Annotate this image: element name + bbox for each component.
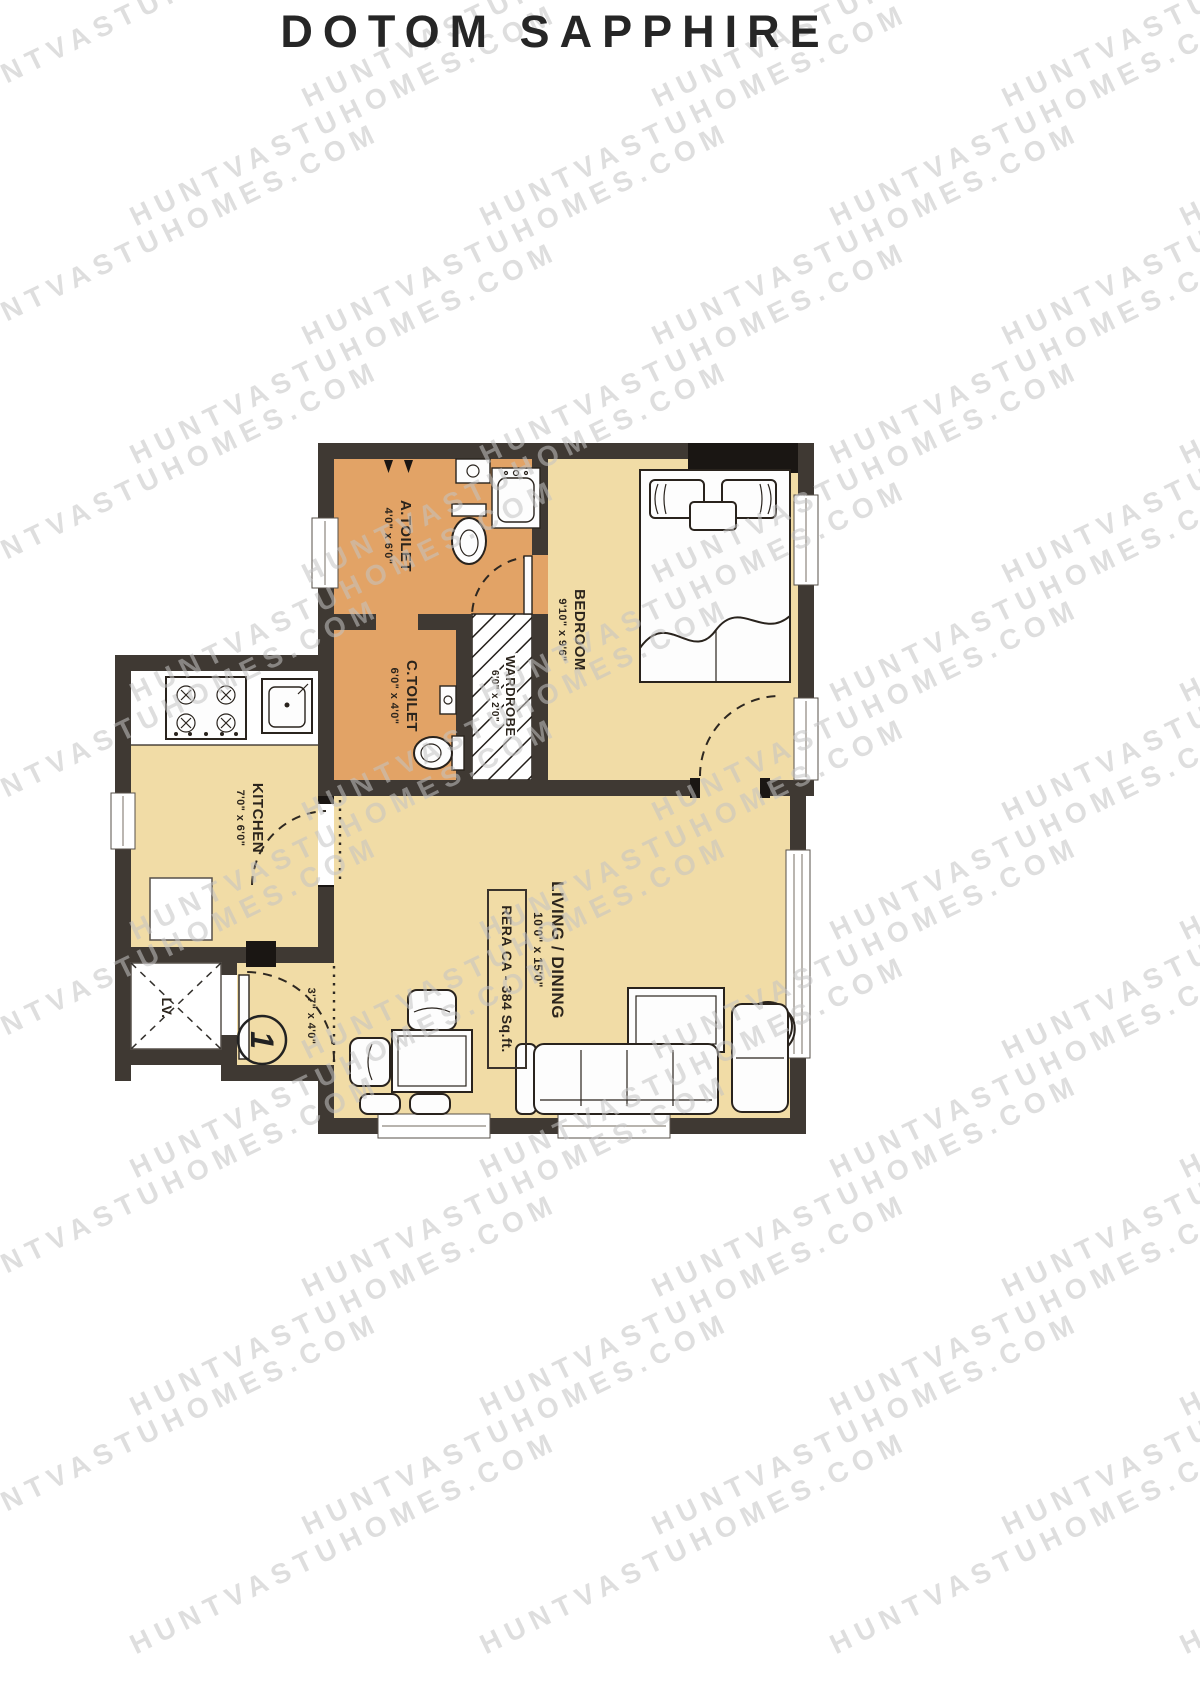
side-sofa-icon — [732, 1004, 788, 1112]
dining-table-icon — [392, 1030, 472, 1092]
washbasin-icon-ctoilet — [440, 686, 456, 714]
utility-shaft — [150, 878, 212, 940]
window-kitchen-left — [111, 793, 135, 849]
wall-kitchen-top — [115, 655, 334, 671]
svg-text:C.TOILET: C.TOILET — [403, 660, 420, 732]
floor-plan-svg: A.TOILET 4'0" x 6'0" C.TOILET 6'0" x 4'0… — [0, 0, 1200, 1697]
sofa-icon — [516, 1044, 718, 1114]
foyer-door-gap — [221, 975, 237, 1035]
wc-icon-a-toilet — [452, 504, 486, 564]
svg-text:1: 1 — [244, 1031, 280, 1049]
wall-wardrobe-bedroom — [532, 614, 548, 780]
wc-icon-c-toilet — [414, 736, 464, 770]
kitchen-door-gap — [318, 804, 334, 885]
svg-text:RERA CA - 384 Sq.ft.: RERA CA - 384 Sq.ft. — [499, 905, 515, 1052]
bedroom-door-fill — [700, 780, 760, 796]
svg-text:3'7" x 4'0": 3'7" x 4'0" — [305, 988, 317, 1045]
kitchen-sink-icon — [262, 679, 312, 733]
page: DOTOM SAPPHIRE HUNTVASTUHOMES.COMHUNTVAS… — [0, 0, 1200, 1697]
svg-text:7'0" x 6'0": 7'0" x 6'0" — [234, 790, 246, 847]
svg-text:BEDROOM: BEDROOM — [571, 589, 588, 671]
label-a-toilet: A.TOILET 4'0" x 6'0" — [382, 500, 414, 572]
coffee-table-icon — [628, 988, 724, 1052]
wall-lift-foyer-b — [221, 1035, 237, 1049]
nub-bedroom-door-right — [760, 778, 770, 798]
wall-mid-horizontal — [318, 780, 690, 796]
wall-lift-foyer-a — [221, 963, 237, 975]
bed-icon — [640, 470, 790, 682]
wall-kitchen-right-upper — [318, 655, 334, 804]
svg-text:WARDROBE: WARDROBE — [503, 655, 518, 736]
duct-block — [688, 443, 814, 473]
svg-text:KITCHEN: KITCHEN — [249, 783, 266, 853]
label-c-toilet: C.TOILET 6'0" x 4'0" — [388, 660, 420, 732]
wall-lift-bottom — [115, 1049, 237, 1065]
corner-sink-icon — [456, 459, 490, 483]
wall-kitchen-left — [115, 655, 131, 1081]
svg-text:6'0" x 4'0": 6'0" x 4'0" — [388, 668, 400, 725]
label-kitchen: KITCHEN 7'0" x 6'0" — [234, 783, 266, 853]
label-rera: RERA CA - 384 Sq.ft. — [499, 905, 515, 1052]
svg-text:6'0" x 2'0": 6'0" x 2'0" — [489, 670, 500, 722]
ctoilet-door-gap — [376, 614, 418, 630]
wall-foyer-bottom — [221, 1065, 334, 1081]
lift-shaft — [131, 963, 221, 1049]
window-bottom-1 — [378, 1114, 490, 1138]
wall-foyer-top — [131, 947, 334, 963]
svg-text:10'0" x 15'0": 10'0" x 15'0" — [531, 912, 545, 988]
window-bedroom-right-2 — [794, 698, 818, 780]
label-lift: LV. — [159, 998, 175, 1019]
stove-icon — [166, 677, 246, 739]
washbasin-icon-bath — [492, 468, 540, 528]
wardrobe-floor — [472, 614, 532, 780]
window-toilet-left — [312, 518, 338, 588]
window-bottom-2 — [558, 1114, 670, 1138]
label-bedroom: BEDROOM 9'10" x 9'6" — [556, 589, 588, 671]
wall-mid-horizontal-right — [770, 780, 814, 796]
page-title: DOTOM SAPPHIRE — [0, 6, 1110, 58]
window-bedroom-right-1 — [794, 495, 818, 585]
unit-number: 1 — [244, 1031, 280, 1049]
label-foyer-dims-real: 3'7" x 4'0" — [305, 988, 317, 1045]
wall-kitchen-right-lower — [318, 885, 334, 947]
bath-door-fill — [532, 555, 548, 614]
column-foyer — [246, 941, 276, 967]
svg-text:LIVING / DINING: LIVING / DINING — [548, 881, 567, 1019]
dining-chair-top-icon — [408, 990, 456, 1030]
foyer-floor — [237, 963, 334, 1065]
nub-bedroom-door-left — [690, 778, 700, 798]
door-leaf-bath — [524, 556, 532, 614]
svg-text:4'0" x 6'0": 4'0" x 6'0" — [382, 508, 394, 565]
svg-text:A.TOILET: A.TOILET — [397, 500, 414, 572]
svg-text:9'10" x 9'6": 9'10" x 9'6" — [556, 598, 568, 661]
svg-text:LV.: LV. — [159, 998, 175, 1019]
dining-chair-left-icon — [350, 1038, 390, 1086]
